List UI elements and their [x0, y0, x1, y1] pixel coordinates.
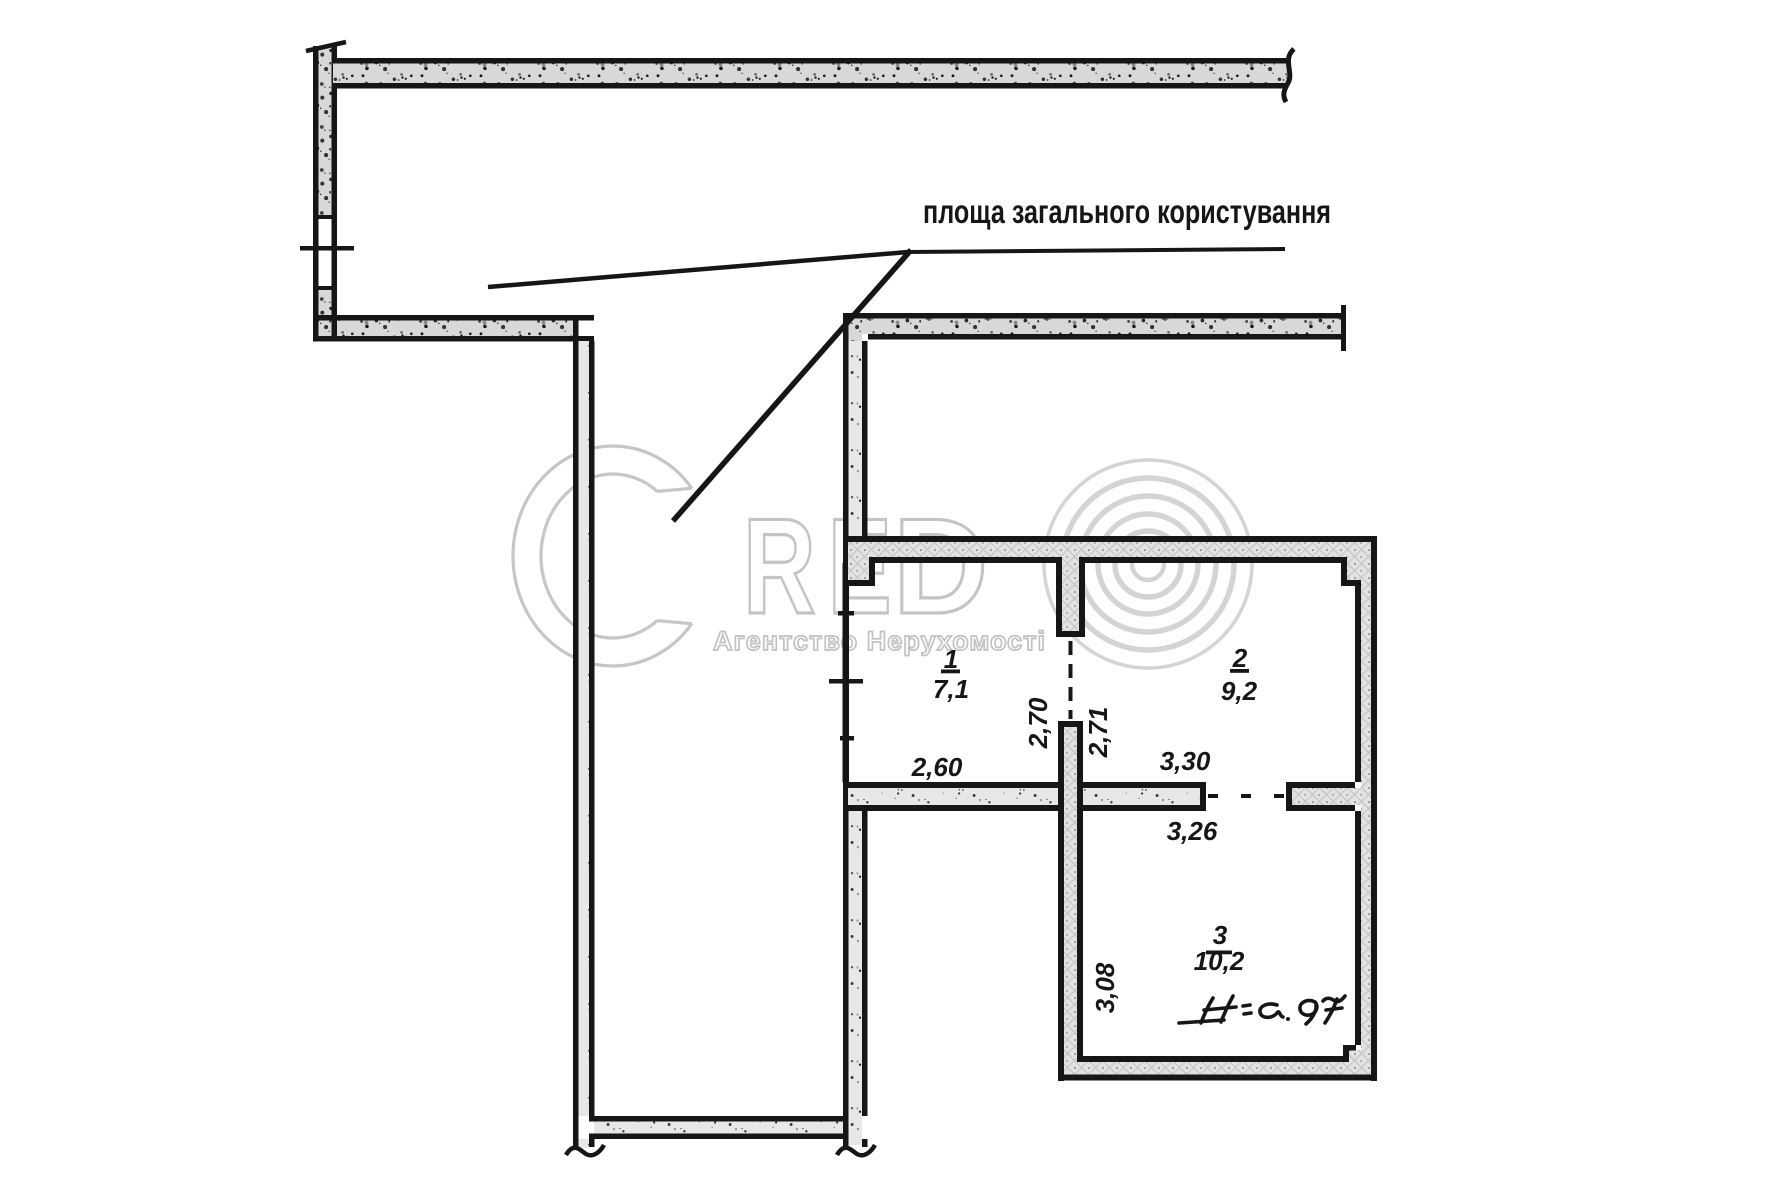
svg-text:Агентство Нерухомості: Агентство Нерухомості — [713, 626, 1046, 656]
svg-text:D: D — [893, 491, 988, 642]
svg-text:10,2: 10,2 — [1194, 946, 1245, 976]
svg-text:3,30: 3,30 — [1160, 746, 1211, 776]
svg-text:7,1: 7,1 — [933, 674, 969, 704]
svg-text:2: 2 — [1232, 643, 1248, 673]
svg-text:3,08: 3,08 — [1090, 962, 1120, 1013]
svg-text:R: R — [743, 491, 816, 642]
svg-text:9,2: 9,2 — [1221, 676, 1258, 706]
svg-text:2,70: 2,70 — [1023, 697, 1053, 749]
svg-text:площа загального користування: площа загального користування — [923, 193, 1331, 230]
svg-text:3,26: 3,26 — [1167, 816, 1218, 846]
svg-text:2,60: 2,60 — [911, 752, 963, 782]
svg-text:2,71: 2,71 — [1083, 707, 1113, 759]
